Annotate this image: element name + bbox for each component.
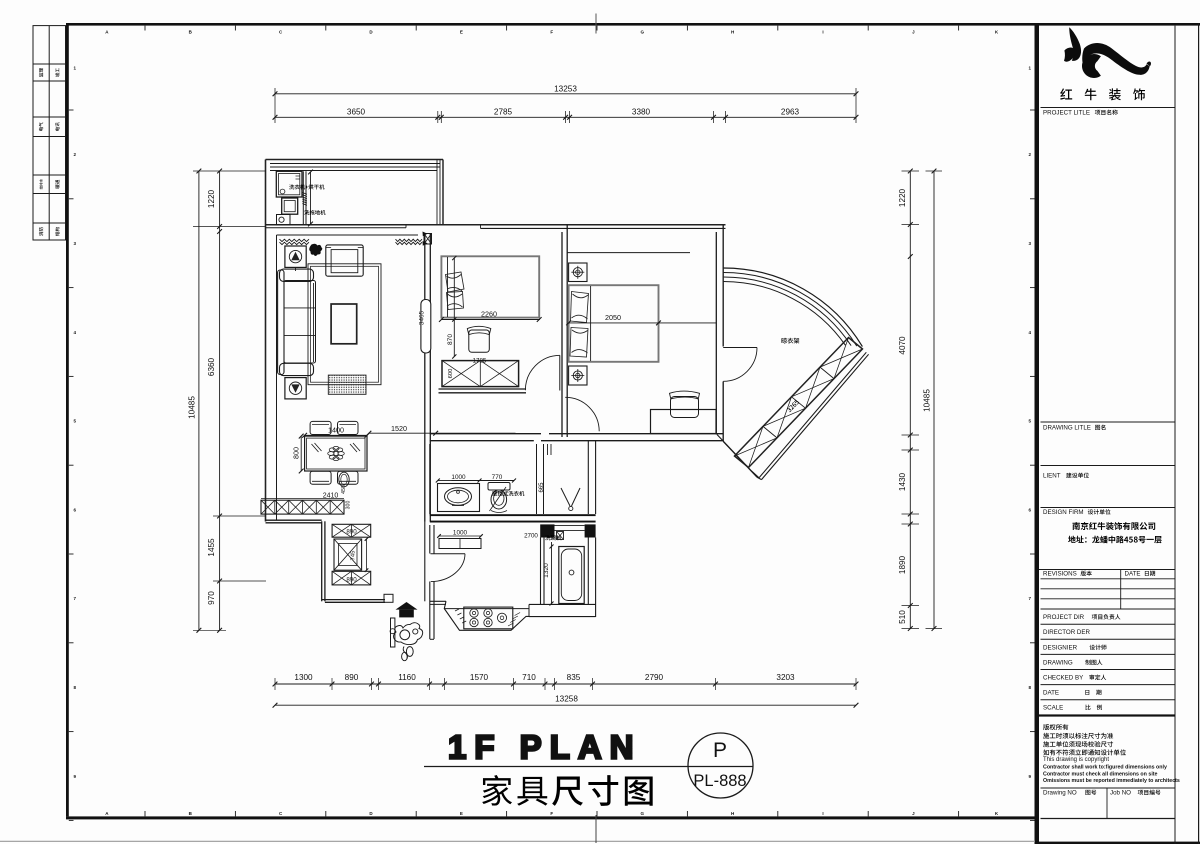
svg-text:CHECKED BY: CHECKED BY [1043,675,1083,682]
svg-text:710: 710 [522,673,536,682]
svg-text:I: I [822,811,823,816]
svg-text:1570: 1570 [470,673,489,682]
svg-text:Contractor must check all dime: Contractor must check all dimensions on … [1043,771,1158,777]
svg-text:3650: 3650 [347,107,366,116]
svg-text:Contractor shall work to:figur: Contractor shall work to:figured dimensi… [1043,765,1167,771]
svg-text:835: 835 [567,673,581,682]
svg-text:REVISIONS: REVISIONS [1043,571,1077,578]
svg-text:G: G [640,30,644,35]
svg-text:H: H [731,30,734,35]
svg-text:F: F [550,811,553,816]
svg-text:1000: 1000 [451,474,466,481]
svg-text:DATE: DATE [1125,571,1141,578]
svg-text:4070: 4070 [898,336,907,355]
svg-text:E: E [460,30,463,35]
svg-text:300: 300 [345,501,351,510]
svg-text:Omissions must be reported imm: Omissions must be reported immediately t… [1043,778,1180,784]
svg-text:3465: 3465 [419,310,426,325]
svg-text:PROJECT LITLE: PROJECT LITLE [1043,110,1090,117]
svg-text:DRAWING: DRAWING [1043,660,1073,667]
svg-text:6360: 6360 [207,357,216,376]
svg-text:DIRECTOR DER: DIRECTOR DER [1043,629,1091,636]
svg-text:10485: 10485 [187,396,196,419]
svg-text:665: 665 [539,482,545,493]
svg-text:970: 970 [207,591,216,605]
svg-text:890: 890 [346,529,357,536]
svg-text:I: I [822,30,823,35]
svg-text:1300: 1300 [294,673,313,682]
svg-text:870: 870 [447,334,454,345]
svg-text:1455: 1455 [207,538,216,557]
svg-text:1320: 1320 [543,563,550,578]
svg-text:P: P [713,739,727,762]
svg-text:H: H [731,811,734,816]
svg-text:1000: 1000 [453,530,468,537]
svg-text:2790: 2790 [645,673,664,682]
svg-text:2700: 2700 [524,533,538,540]
svg-text:LIENT: LIENT [1043,473,1061,480]
svg-text:This drawing is copyright: This drawing is copyright [1043,757,1109,763]
svg-text:1520: 1520 [391,424,407,433]
svg-text:1785: 1785 [473,358,487,365]
svg-text:3203: 3203 [776,673,795,682]
svg-text:770: 770 [492,474,503,481]
svg-text:890: 890 [346,577,357,584]
svg-text:1220: 1220 [898,188,907,207]
svg-text:1400: 1400 [328,426,344,435]
svg-text:DRAWING LITLE: DRAWING LITLE [1043,425,1091,432]
svg-text:PROJECT DIR: PROJECT DIR [1043,614,1085,621]
svg-text:1890: 1890 [898,555,907,574]
svg-text:1430: 1430 [898,472,907,491]
svg-text:1160: 1160 [398,673,416,682]
svg-text:2260: 2260 [481,310,497,319]
svg-text:3380: 3380 [632,107,651,116]
svg-text:2050: 2050 [605,313,621,322]
svg-text:Job NO: Job NO [1110,790,1131,797]
svg-text:F: F [550,30,553,35]
svg-text:510: 510 [898,610,907,624]
svg-text:2410: 2410 [323,493,339,500]
svg-text:G: G [640,811,644,816]
svg-text:Drawing NO: Drawing NO [1043,790,1077,797]
svg-text:DESIGNIER: DESIGNIER [1043,645,1078,652]
svg-text:SCALE: SCALE [1043,705,1063,712]
svg-text:800: 800 [291,447,300,459]
svg-text:450: 450 [341,485,347,494]
svg-text:10485: 10485 [922,389,931,412]
svg-text:13258: 13258 [555,695,578,704]
svg-text:1F PLAN: 1F PLAN [448,729,642,766]
svg-text:DESIGN FIRM: DESIGN FIRM [1043,509,1084,516]
svg-text:DATE: DATE [1043,690,1059,697]
svg-text:PL-888: PL-888 [693,772,746,790]
svg-text:745: 745 [351,551,357,561]
svg-text:890: 890 [345,673,359,682]
svg-text:13253: 13253 [554,84,577,93]
svg-text:2785: 2785 [494,107,513,116]
svg-text:600: 600 [448,369,454,379]
svg-text:2963: 2963 [781,107,800,116]
svg-text:1220: 1220 [207,189,216,208]
svg-text:E: E [460,811,463,816]
